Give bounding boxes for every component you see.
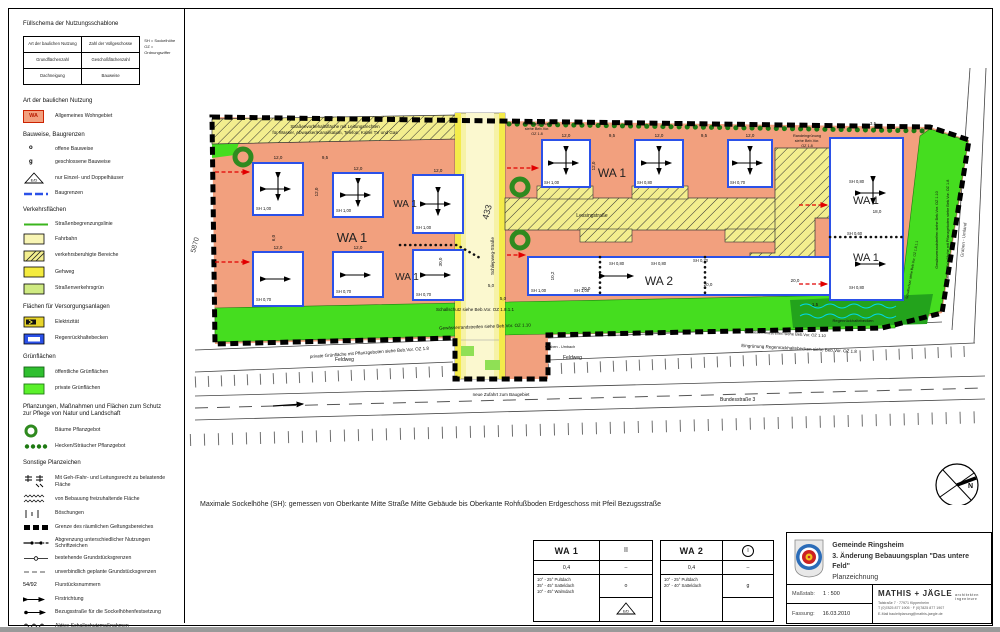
boeschung-icon — [23, 509, 45, 519]
baum-pflanzgebot-icon — [23, 424, 39, 438]
wa2-name-cell: WA 2 — [661, 541, 723, 560]
open-bauweise-icon: o — [23, 145, 33, 153]
legend-item: o offene Bauweise — [23, 145, 180, 154]
legend-label: private Grünflächen — [55, 385, 100, 392]
legend-heading-versorgung: Flächen für Versorgungsanlagen — [23, 304, 180, 312]
plan-sheet: Füllschema der Nutzungsschablone Art der… — [0, 0, 1000, 632]
wa1-bauweise-cell: o E/D — [600, 575, 652, 621]
strassenbegrenzung-icon — [23, 222, 49, 227]
legend-item: Bezugsstraße für die Sockelhöhenfestsetz… — [23, 608, 180, 617]
dim-label: 12,0 — [562, 133, 571, 138]
legend-heading-verkehr: Verkehrsflächen — [23, 207, 180, 215]
legend-item: Fahrbahn — [23, 233, 180, 245]
legend-item: private Grünflächen — [23, 383, 180, 395]
title-block-top: Gemeinde Ringsheim 3. Änderung Bebauungs… — [787, 533, 991, 585]
legend-label: Hecken/Sträucher Pflanzgebot — [55, 443, 125, 450]
north-south-road — [455, 113, 505, 379]
utility-note-line1: Straßenvorbehaltsfläche mit Leitungsrech… — [290, 124, 380, 129]
legend-item: Gehweg — [23, 266, 180, 278]
feldweg-label: Feldweg — [335, 357, 354, 363]
wa2-label: WA 2 — [645, 274, 674, 288]
single-double-house-icon: E/D — [616, 602, 636, 616]
wa2-floors-circled: I — [742, 545, 754, 557]
wa1-floors-cell: II — [600, 541, 652, 560]
legend-heading-nutzung: Art der baulichen Nutzung — [23, 98, 180, 106]
legend-label: Allgemeines Wohngebiet — [55, 113, 112, 120]
schema-cell: Grundflächenzahl — [24, 52, 82, 68]
pflanz-heading-line2: zur Pflege von Natur und Landschaft — [23, 411, 180, 419]
legend-item: Straßenverkehrsgrün — [23, 283, 180, 295]
dim-label: 5,0 — [500, 296, 507, 301]
schema-table-wrap: Art der baulichen Nutzung Zahl der Vollg… — [23, 34, 180, 89]
nutzungsschablone-schema: Art der baulichen Nutzung Zahl der Vollg… — [23, 36, 140, 85]
schema-cell: Bauweise — [81, 68, 139, 84]
scale-label: Maßstab: — [792, 591, 815, 597]
dim-label: 10,2 — [550, 271, 555, 280]
dim-label: 20,0 — [791, 278, 800, 283]
pflanz-heading-line1: Pflanzungen, Maßnahmen und Flächen zum S… — [23, 404, 180, 412]
feldweg-label: Feldweg — [563, 355, 582, 361]
legend-item: Böschungen — [23, 509, 180, 519]
randeingruenung-note: Randeingrünung — [523, 122, 551, 126]
legend-label: verkehrsberuhigte Bereiche — [55, 252, 118, 259]
dim-label: 9,5 — [701, 133, 708, 138]
version-value: 16.03.2010 — [823, 611, 851, 617]
sh-label: SH 1,00 — [531, 288, 547, 293]
single-double-house-icon: E/D — [23, 172, 45, 185]
wa2-dach-cell: 10° - 25° Pultdach 20° - 40° Satteldach — [661, 575, 723, 621]
wa1-label: WA 1 — [395, 272, 419, 283]
legend-item: Grenze des räumlichen Geltungsbereiches — [23, 523, 180, 532]
dim-label: 6,0 — [271, 234, 276, 241]
title-block-bottom: Maßstab: 1 : 500 Fassung: 16.03.2010 MAT… — [787, 585, 991, 623]
geh-fahr-leitungsrecht-icon — [23, 474, 45, 490]
legend-heading-gruen: Grünflächen — [23, 354, 180, 362]
wa1-grz-cell: 0,4 — [534, 561, 600, 574]
legend-item: E/D nur Einzel- und Doppelhäuser — [23, 172, 180, 185]
sh-label: SH 0,70 — [730, 180, 746, 185]
version-row: Fassung: 16.03.2010 — [787, 604, 872, 623]
regenbecken-label: Regenrückhaltebecken — [833, 318, 874, 323]
plan-title: 3. Änderung Bebauungsplan "Das untere Fe… — [832, 552, 985, 573]
version-label: Fassung: — [792, 611, 815, 617]
dim-label: 20,0 — [582, 286, 591, 291]
dim-label: 20,0 — [704, 282, 713, 287]
sh-label: SH 1,00 — [256, 206, 272, 211]
regenbecken-icon — [23, 333, 45, 345]
wa1-bauweise-value: o — [600, 576, 652, 598]
legend-label: Mit Geh-/Fahr- und Leitungsrecht zu bela… — [55, 475, 180, 488]
legend-item: Straßenbegrenzungslinie — [23, 220, 180, 229]
firstrichtung-icon — [23, 596, 49, 603]
sh-label: SH 0,70 — [416, 292, 432, 297]
embankment-ticks — [190, 351, 985, 440]
geplante-grenze-icon — [23, 569, 49, 575]
sh-label: SH 0,70 — [336, 289, 352, 294]
dach-line: 20° - 40° Satteldach — [664, 583, 701, 589]
legend-label: Firstrichtung — [55, 596, 84, 603]
randeingruenung-note: OZ 1.8 — [531, 132, 543, 136]
legend-label: bestehende Grundstücksgrenzen — [55, 555, 131, 562]
scale-row: Maßstab: 1 : 500 — [787, 585, 872, 604]
bundesstrasse-label: Bundesstraße 3 — [720, 397, 756, 403]
sh-label: SH 0,80 — [651, 261, 667, 266]
legend-label: von Bebauung freizuhaltende Fläche — [55, 496, 140, 503]
north-label: N — [968, 483, 973, 490]
legend-item: Baugrenzen — [23, 189, 180, 198]
flurstueck-number-icon: 54/92 — [23, 582, 37, 589]
wa1-schedule-table: WA 1 II 0,4 – 10° - 25° Pultdach 35° - 4… — [533, 540, 653, 622]
legend-label: öffentliche Grünflächen — [55, 369, 108, 376]
privgruen-note: private Grünfläche mit Pflanzgeboten sie… — [310, 346, 430, 359]
sh-label: SH 0,80 — [637, 180, 653, 185]
schallschutz-note: Schallschutz siehe Beb.Vor. OZ 1.8.1.1 — [436, 307, 515, 312]
legend-item: Regenrückhaltebecken — [23, 333, 180, 345]
firm-email: E-Mail bauleitplanung@mathis-jaegle.de — [878, 612, 986, 617]
sh-label: SH 1,00 — [336, 208, 352, 213]
closed-bauweise-icon: g — [23, 159, 33, 167]
dach-line: 10° - 45° Walmdach — [537, 589, 574, 595]
wa2-grz-cell: 0,4 — [661, 561, 723, 574]
wa1-label: WA 1 — [853, 195, 879, 207]
legend-label: Flurstücksnummern — [55, 582, 101, 589]
legend-item: bestehende Grundstücksgrenzen — [23, 554, 180, 563]
baugrenze-icon — [23, 191, 49, 197]
dim-label: 12,0 — [354, 166, 363, 171]
legend-heading-bauweise: Bauweise, Baugrenzen — [23, 132, 180, 140]
legend-item: Mit Geh-/Fahr- und Leitungsrecht zu bela… — [23, 474, 180, 490]
legend-label: Straßenbegrenzungslinie — [55, 221, 113, 228]
dim-label: 12,0 — [274, 245, 283, 250]
legend-item: verkehrsberuhigte Bereiche — [23, 250, 180, 262]
legend-label: Abgrenzung unterschiedlicher Nutzungen S… — [55, 537, 180, 550]
schema-cell: Art der baulichen Nutzung — [24, 36, 82, 52]
legend-label: Regenrückhaltebecken — [55, 335, 108, 342]
legend-label: Böschungen — [55, 510, 84, 517]
sh-label: SH 1,00 — [416, 225, 432, 230]
legend-label: nur Einzel- und Doppelhäuser — [55, 175, 124, 182]
plan-type: Planzeichnung — [832, 573, 985, 584]
sh-label: SH 0,80 — [849, 179, 865, 184]
wa1-label: WA 1 — [598, 166, 627, 180]
schema-notes: SH = Sockelhöhe OZ = Ordnungsziffer — [144, 38, 180, 56]
vertical-street-label: Schliepweg-Straße — [490, 237, 495, 276]
schema-cell: Geschoßflächenzahl — [81, 52, 139, 68]
wa2-floors-cell: I — [723, 541, 773, 560]
sh-label: SH 0,70 — [693, 258, 709, 263]
legend-item: 54/92 Flurstücksnummern — [23, 581, 180, 590]
legend-label: Gehweg — [55, 269, 74, 276]
schema-cell: Zahl der Vollgeschosse — [81, 36, 139, 52]
road-centerline — [195, 388, 985, 408]
dim-label: 12,0 — [591, 161, 596, 170]
dim-label: 12,0 — [434, 168, 443, 173]
wa2-empty-cell — [723, 598, 773, 621]
legend-label: unverbindlich geplante Grundstücksgrenze… — [55, 569, 156, 576]
freihalteflaeche-icon — [23, 494, 49, 504]
window-bottom-bar — [0, 627, 1000, 632]
eingruenung-rrb-note: Eingrünung Regenrückhaltebecken siehe Be… — [741, 343, 857, 354]
ringsheim-coat-of-arms — [793, 538, 824, 578]
legend-item: Elektrizität — [23, 316, 180, 328]
legend-heading-sonstige: Sonstige Planzeichen — [23, 460, 180, 468]
sh-label: SH 0,80 — [609, 261, 625, 266]
north-arrow: N — [936, 464, 978, 505]
wa2-bauweise-value: g — [723, 576, 773, 598]
randeingruenung-note: Randeingrünung — [793, 134, 821, 138]
dim-label: 9,5 — [609, 133, 616, 138]
scale-version-cells: Maßstab: 1 : 500 Fassung: 16.03.2010 — [787, 585, 873, 623]
lessingstrasse-label: Lessingstraße — [576, 213, 608, 219]
site-plan-drawing: WA 1 WA 1 WA 1 WA 1 WA 2 WA 1 WA 1 SH 1,… — [185, 8, 992, 505]
strassengruen-icon — [23, 283, 45, 295]
legend-item: Abgrenzung unterschiedlicher Nutzungen S… — [23, 537, 180, 550]
legend-item: von Bebauung freizuhaltende Fläche — [23, 494, 180, 504]
bezugsstrasse-icon — [23, 609, 49, 616]
firm-subtitle: architekten ingenieure — [955, 594, 981, 601]
legend-panel: Füllschema der Nutzungsschablone Art der… — [9, 9, 185, 623]
parcel-5870: 5870 — [190, 237, 201, 254]
legend-label: Straßenverkehrsgrün — [55, 285, 104, 292]
ed-text: E/D — [623, 610, 629, 614]
randeingruenung-note: siehe Beb.Vor. — [795, 139, 820, 143]
dim-label: 12,0 — [274, 155, 283, 160]
privgruen-note-east: private Grünfläche mit Pflanzgeboten sie… — [946, 180, 950, 281]
verkehrsberuhigt-icon — [23, 250, 45, 262]
dim-label: 30,0 — [438, 257, 443, 266]
legend-item: öffentliche Grünflächen — [23, 366, 180, 378]
legend-item: unverbindlich geplante Grundstücksgrenze… — [23, 568, 180, 577]
wa1-label: WA 1 — [853, 252, 879, 264]
utility-note-line2: für Wasser, Abwasser/Kanalisation, Telef… — [272, 130, 398, 135]
wa2-gfz-cell: – — [723, 561, 773, 574]
sh-label: SH 0,60 — [847, 231, 863, 236]
firm-block: MATHIS + JÄGLE architekten ingenieure Ta… — [873, 585, 991, 623]
schema-cell: Dachneigung — [24, 68, 82, 84]
dim-label: 9,5 — [322, 155, 329, 160]
wa1-dach-cell: 10° - 25° Pultdach 35° - 45° Satteldach … — [534, 575, 600, 621]
legend-label: geschlossene Bauweise — [55, 159, 111, 166]
fahrbahn-icon — [23, 233, 45, 245]
graben-umbach-label: Graben - Umbach — [545, 345, 575, 349]
dim-label: 12,0 — [655, 133, 664, 138]
gewaesser-note-east: Gewässerrandstreifen siehe Beb.Vor. OZ 1… — [935, 191, 939, 268]
sh-label: SH 0,70 — [256, 297, 272, 302]
zufahrt-note: neue Zufahrt zum Baugebiet — [473, 392, 531, 397]
legend-label: Baugrenzen — [55, 190, 83, 197]
legend-label: offene Bauweise — [55, 146, 93, 153]
hecken-pflanzgebot-icon — [23, 443, 49, 450]
sockelhoehe-note: Maximale Sockelhöhe (SH): gemessen von O… — [200, 501, 760, 508]
wa2-bauweise-cell: g — [723, 575, 773, 621]
wa-area-icon: WA — [23, 110, 44, 123]
gemeinde-name: Gemeinde Ringsheim — [832, 541, 985, 552]
dim-label: 3,5 — [870, 121, 877, 126]
legend-label: Fahrbahn — [55, 236, 77, 243]
schema-note: SH = Sockelhöhe — [144, 38, 180, 44]
wa1-label: WA 1 — [337, 230, 368, 245]
schema-note: OZ = Ordnungsziffer — [144, 44, 180, 56]
legend-heading-pflanz: Pflanzungen, Maßnahmen und Flächen zum S… — [23, 404, 180, 419]
abgrenzung-icon — [23, 540, 49, 546]
wa2-schedule-table: WA 2 I 0,4 – 10° - 25° Pultdach 20° - 40… — [660, 540, 774, 622]
wa1-gfz-cell: – — [600, 561, 652, 574]
randeingruenung-note: OZ 1.8 — [801, 144, 813, 148]
wa1-ed-symbol: E/D — [600, 598, 652, 621]
dim-label: 18,0 — [873, 209, 882, 214]
legend-label: Bezugsstraße für die Sockelhöhenfestsetz… — [55, 609, 161, 616]
dim-label: 12,0 — [354, 245, 363, 250]
legend-item: Firstrichtung — [23, 595, 180, 604]
legend-item-wa: WA Allgemeines Wohngebiet — [23, 110, 180, 123]
privat-gruen-icon — [23, 383, 45, 395]
dim-label: 12,0 — [746, 133, 755, 138]
firm-name: MATHIS + JÄGLE — [878, 588, 952, 600]
wa1-label: WA 1 — [393, 199, 417, 210]
gehweg-icon — [23, 266, 45, 278]
sh-label: SH 0,80 — [849, 285, 865, 290]
sh-label: SH 1,00 — [544, 180, 560, 185]
grundstuecksgrenze-icon — [23, 555, 49, 562]
elektrizitaet-icon — [23, 316, 45, 328]
scale-value: 1 : 500 — [823, 591, 840, 597]
graben-umland-label: Graben - Umland — [960, 222, 968, 257]
legend-item: Bäume Pflanzgebot — [23, 424, 180, 438]
ed-text: E/D — [31, 177, 38, 182]
legend-title: Füllschema der Nutzungsschablone — [23, 21, 180, 29]
legend-item: g geschlossene Bauweise — [23, 158, 180, 167]
title-block: Gemeinde Ringsheim 3. Änderung Bebauungs… — [786, 532, 992, 624]
legend-label: Bäume Pflanzgebot — [55, 427, 100, 434]
wa1-name-cell: WA 1 — [534, 541, 600, 560]
dim-label: 12,0 — [314, 187, 319, 196]
title-text: Gemeinde Ringsheim 3. Änderung Bebauungs… — [832, 538, 985, 579]
geltungsbereich-icon — [23, 524, 49, 531]
dim-label: 5,0 — [488, 283, 495, 288]
randeingruenung-note: siehe Beb.Vor. — [525, 127, 550, 131]
oeffentlich-gruen-icon — [23, 366, 45, 378]
legend-label: Grenze des räumlichen Geltungsbereiches — [55, 524, 153, 531]
legend-item: Hecken/Sträucher Pflanzgebot — [23, 442, 180, 451]
dim-label: 1,5 — [812, 302, 819, 307]
legend-label: Elektrizität — [55, 319, 79, 326]
